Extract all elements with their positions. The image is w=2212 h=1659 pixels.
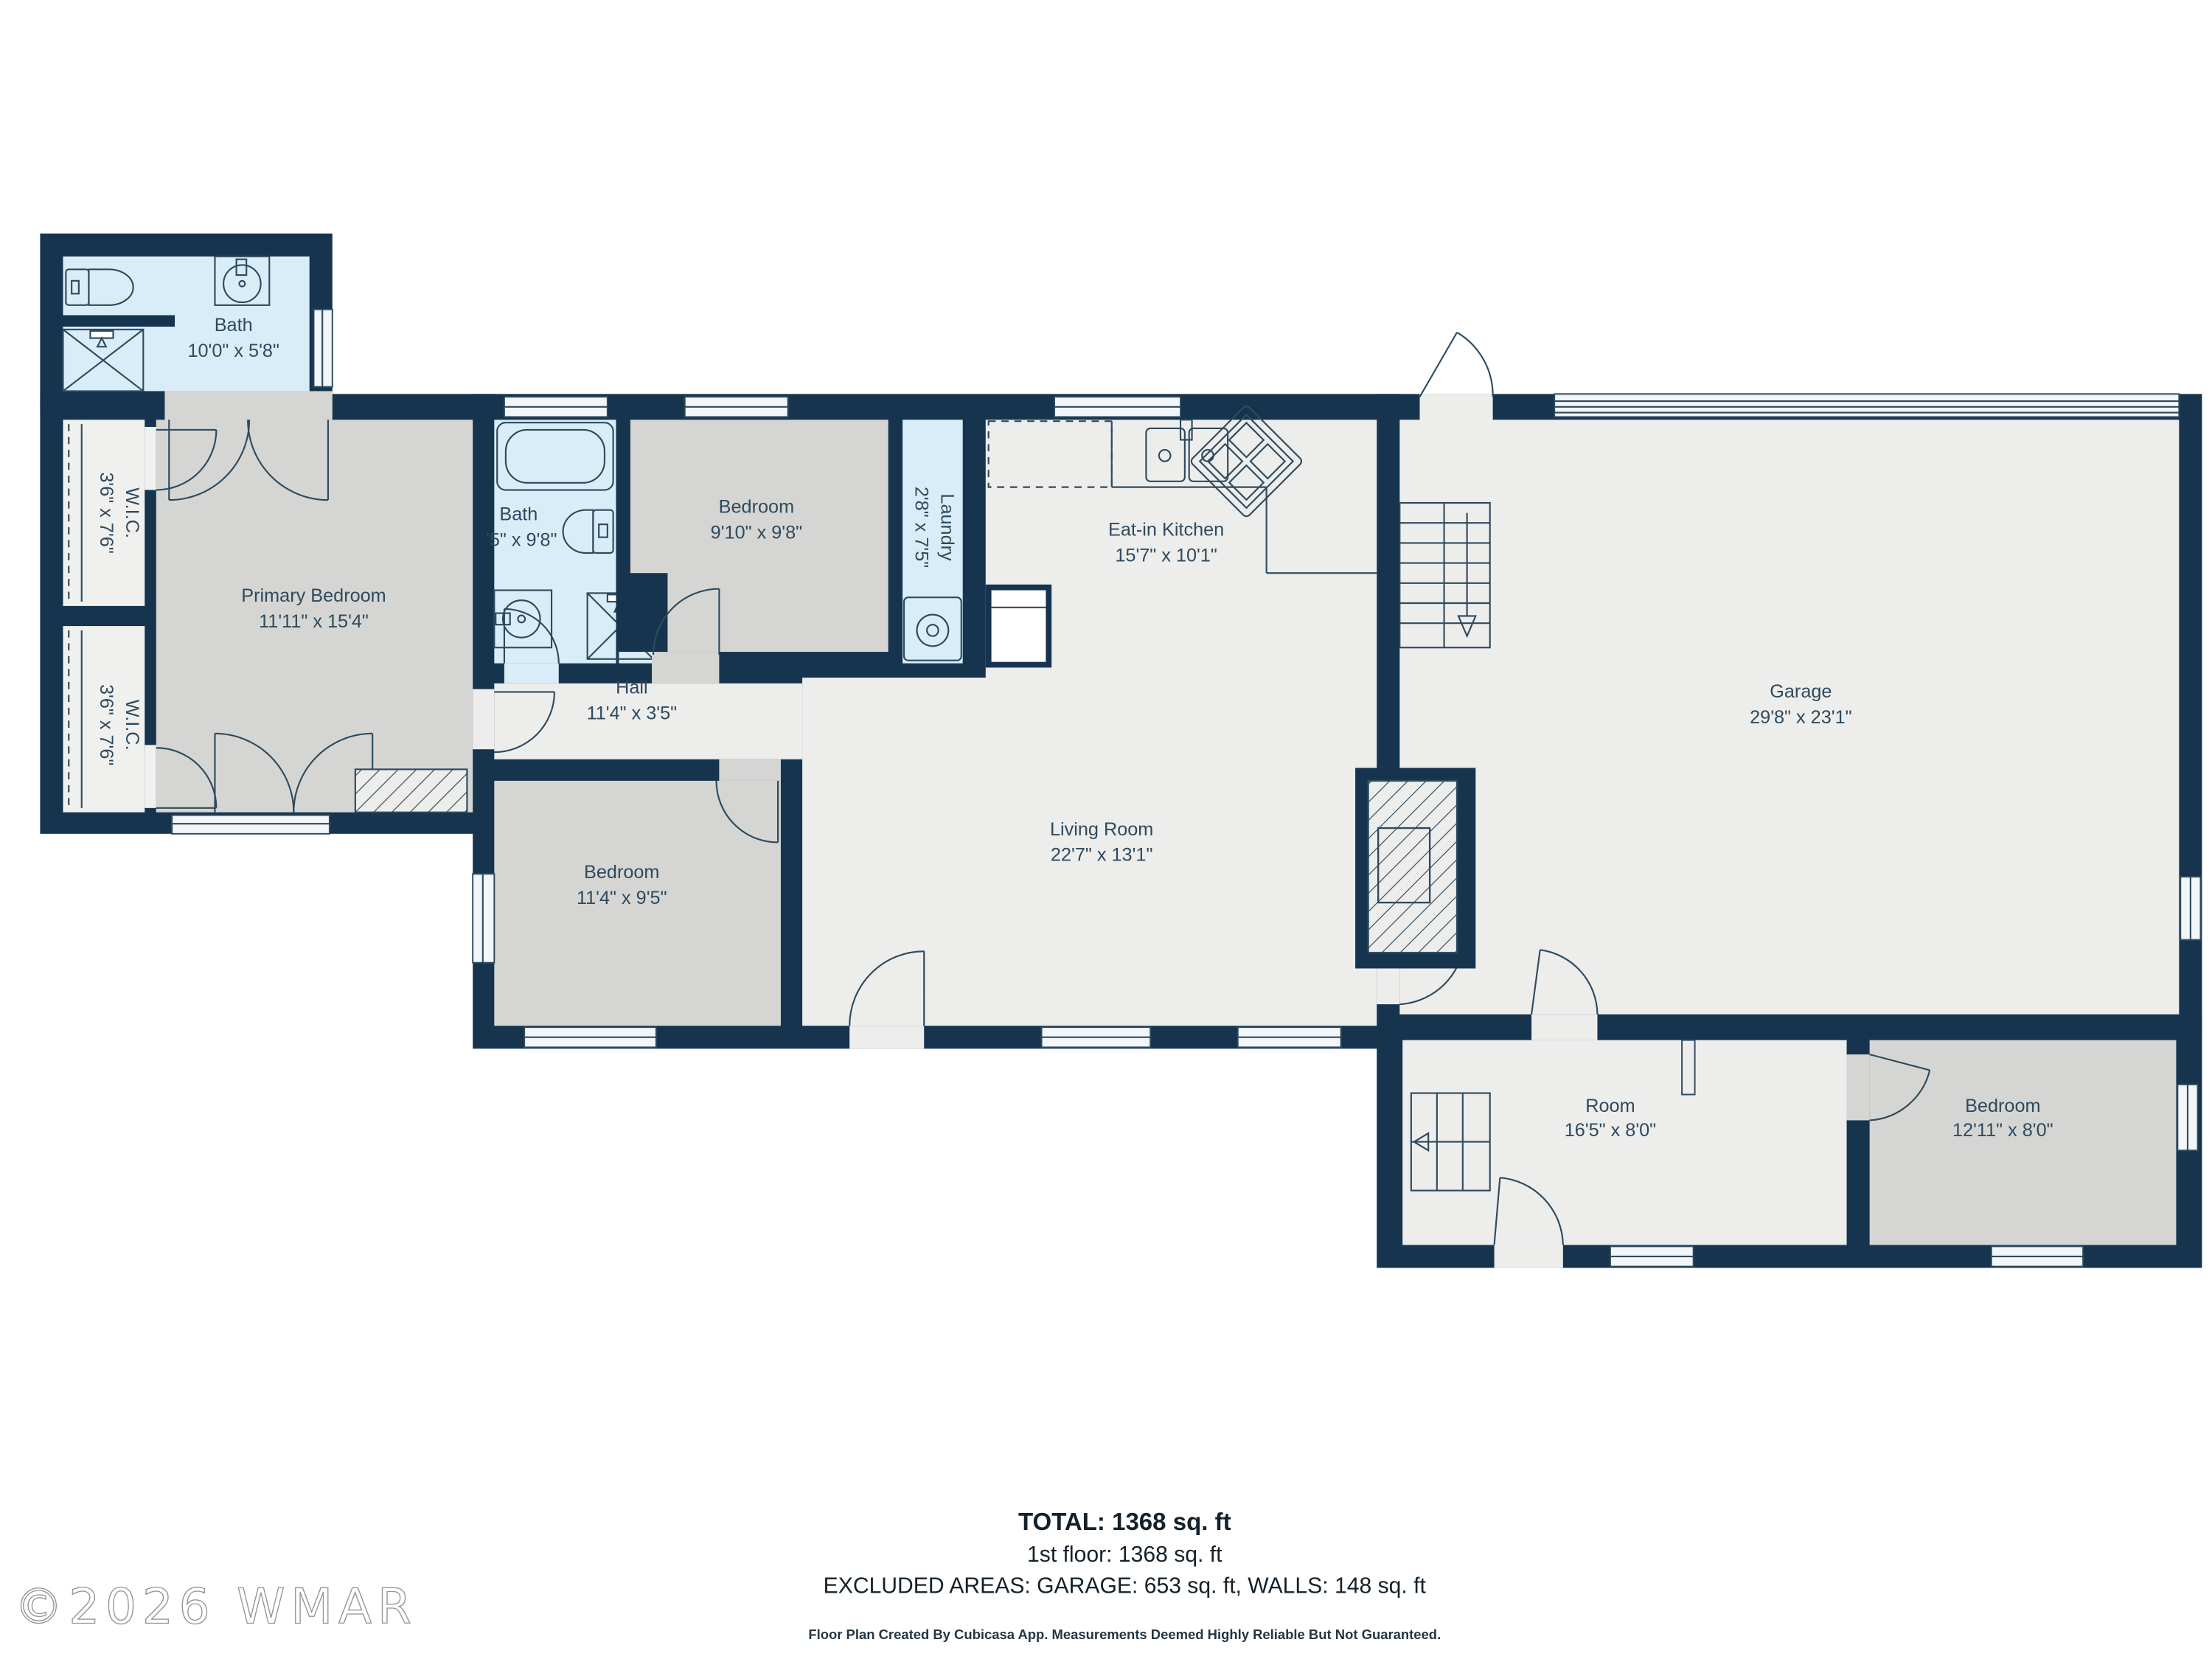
room-label: Bedroom <box>1965 1096 2040 1116</box>
room-dims: 10'0" x 5'8" <box>187 341 279 361</box>
fireplace-icon <box>1368 781 1457 953</box>
door-opening <box>1531 1015 1597 1040</box>
door-opening <box>145 745 156 807</box>
room-dims: 9'10" x 9'8" <box>711 523 802 543</box>
disclaimer-text: Floor Plan Created By Cubicasa App. Meas… <box>808 1627 1441 1642</box>
room-dims: 11'4" x 3'5" <box>587 703 678 723</box>
room-bedroom-2: Bedroom 9'10" x 9'8" <box>616 420 888 684</box>
window <box>685 397 788 417</box>
room-label: Bedroom <box>719 497 794 518</box>
window <box>1042 1027 1151 1047</box>
window <box>1238 1027 1341 1047</box>
door-opening <box>164 391 332 422</box>
room-label: Room <box>1585 1096 1635 1116</box>
partition <box>1682 1040 1694 1095</box>
window <box>1054 397 1180 417</box>
door-opening <box>652 652 719 684</box>
door-opening <box>1847 1054 1870 1120</box>
room-laundry: Laundry 2'8" x 7'5" <box>902 420 963 663</box>
door-opening <box>145 427 156 490</box>
room-room: Room 16'5" x 8'0" <box>1402 1040 1846 1268</box>
fridge-icon <box>989 588 1049 665</box>
watermark: ©2026 WMAR <box>14 1578 417 1635</box>
room-wic-1: W.I.C. 3'6" x 7'6" <box>63 420 145 606</box>
summary: TOTAL: 1368 sq. ft 1st floor: 1368 sq. f… <box>808 1508 1441 1642</box>
room-label: W.I.C. <box>122 700 142 751</box>
room-dims: 3'6" x 7'6" <box>96 472 116 553</box>
door-opening <box>719 759 781 781</box>
room-dims: 2'8" x 7'5" <box>911 487 932 568</box>
room-primary-bedroom: Primary Bedroom 11'11" x 15'4" <box>145 391 473 812</box>
room-dims: 29'8" x 23'1" <box>1750 707 1851 728</box>
fireplace-icon <box>355 769 467 812</box>
room-garage: Garage 29'8" x 23'1" <box>1377 333 2179 1040</box>
room-dims: 15'7" x 10'1" <box>1115 546 1217 566</box>
window <box>1610 1246 1694 1266</box>
door-opening <box>849 1026 924 1048</box>
door-opening <box>504 664 559 684</box>
room-label: Hall <box>616 677 648 698</box>
room-dims: 12'11" x 8'0" <box>1952 1120 2053 1141</box>
room-dims: 3'6" x 7'6" <box>96 684 116 765</box>
window <box>473 874 494 962</box>
room-wic-2: W.I.C. 3'6" x 7'6" <box>63 626 145 813</box>
room-dims: '5" x 9'8" <box>486 529 557 550</box>
window <box>524 1027 656 1047</box>
door-opening <box>473 689 494 750</box>
fireplace <box>1355 768 1475 968</box>
door-arc <box>1420 333 1493 397</box>
room-bedroom-4: Bedroom 12'11" x 8'0" <box>1847 1040 2177 1245</box>
window <box>172 815 330 834</box>
first-floor-text: 1st floor: 1368 sq. ft <box>1027 1543 1222 1567</box>
room-label: W.I.C. <box>122 487 142 538</box>
excluded-areas-text: EXCLUDED AREAS: GARAGE: 653 sq. ft, WALL… <box>824 1574 1427 1599</box>
room-label: Eat-in Kitchen <box>1108 520 1224 540</box>
window <box>504 397 608 417</box>
room-dims: 16'5" x 8'0" <box>1565 1120 1656 1141</box>
door-opening <box>1420 394 1493 422</box>
window <box>314 310 333 387</box>
room-label: Garage <box>1770 681 1832 702</box>
window <box>1992 1246 2083 1266</box>
door-opening <box>1495 1245 1563 1267</box>
window <box>2180 877 2200 939</box>
room-dims: 22'7" x 13'1" <box>1051 845 1152 866</box>
room-label: Bath <box>499 504 538 524</box>
room-dims: 11'4" x 9'5" <box>577 888 667 908</box>
room-label: Bath <box>215 315 253 335</box>
garage-door <box>1554 394 2179 417</box>
room-bedroom-3: Bedroom 11'4" x 9'5" <box>494 759 781 1026</box>
room-label: Laundry <box>937 493 958 561</box>
room-bath-1: Bath 10'0" x 5'8" <box>63 257 309 392</box>
window <box>2177 1085 2197 1150</box>
room-label: Living Room <box>1050 819 1153 840</box>
room-label: Bedroom <box>584 862 659 883</box>
total-area-text: TOTAL: 1368 sq. ft <box>1018 1508 1231 1535</box>
room-dims: 11'11" x 15'4" <box>259 611 369 632</box>
room-label: Primary Bedroom <box>241 585 386 606</box>
floor-plan: Bath 10'0" x 5'8" W.I.C. 3'6" x 7'6" W.I… <box>0 0 2212 1659</box>
